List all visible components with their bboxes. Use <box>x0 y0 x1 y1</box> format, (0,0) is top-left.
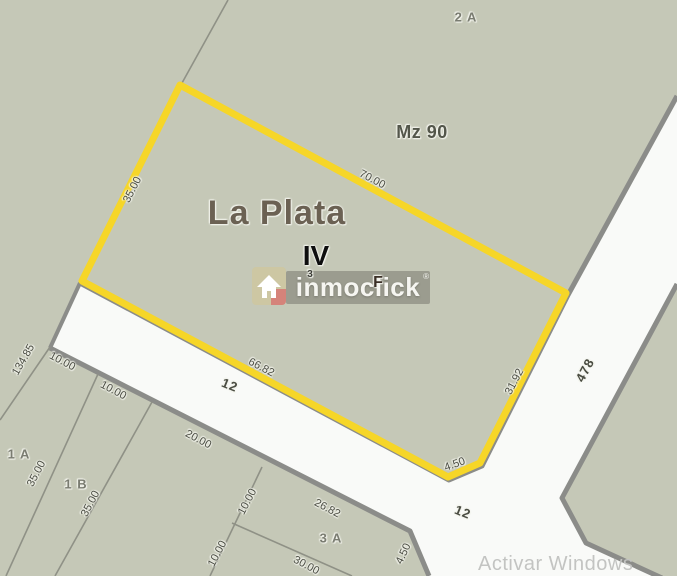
parcel-label-3: 3 <box>307 270 313 280</box>
parcel-label-3a: 3 A <box>320 532 343 545</box>
windows-activation-notice: Activar Windows <box>478 553 633 576</box>
parcel-label-2a: 2 A <box>455 11 478 24</box>
section-label: IV <box>303 242 329 270</box>
map-canvas[interactable]: inmoclick ® Activar Windows 2 AMz 90La P… <box>0 0 677 576</box>
city-label: La Plata <box>208 196 346 230</box>
cadastral-geometry <box>0 0 677 576</box>
parcel-label-f: F <box>373 275 383 291</box>
parcel-label-1b: 1 B <box>64 478 87 491</box>
block-label-mz90: Mz 90 <box>396 123 448 141</box>
parcel-label-1a: 1 A <box>8 448 31 461</box>
